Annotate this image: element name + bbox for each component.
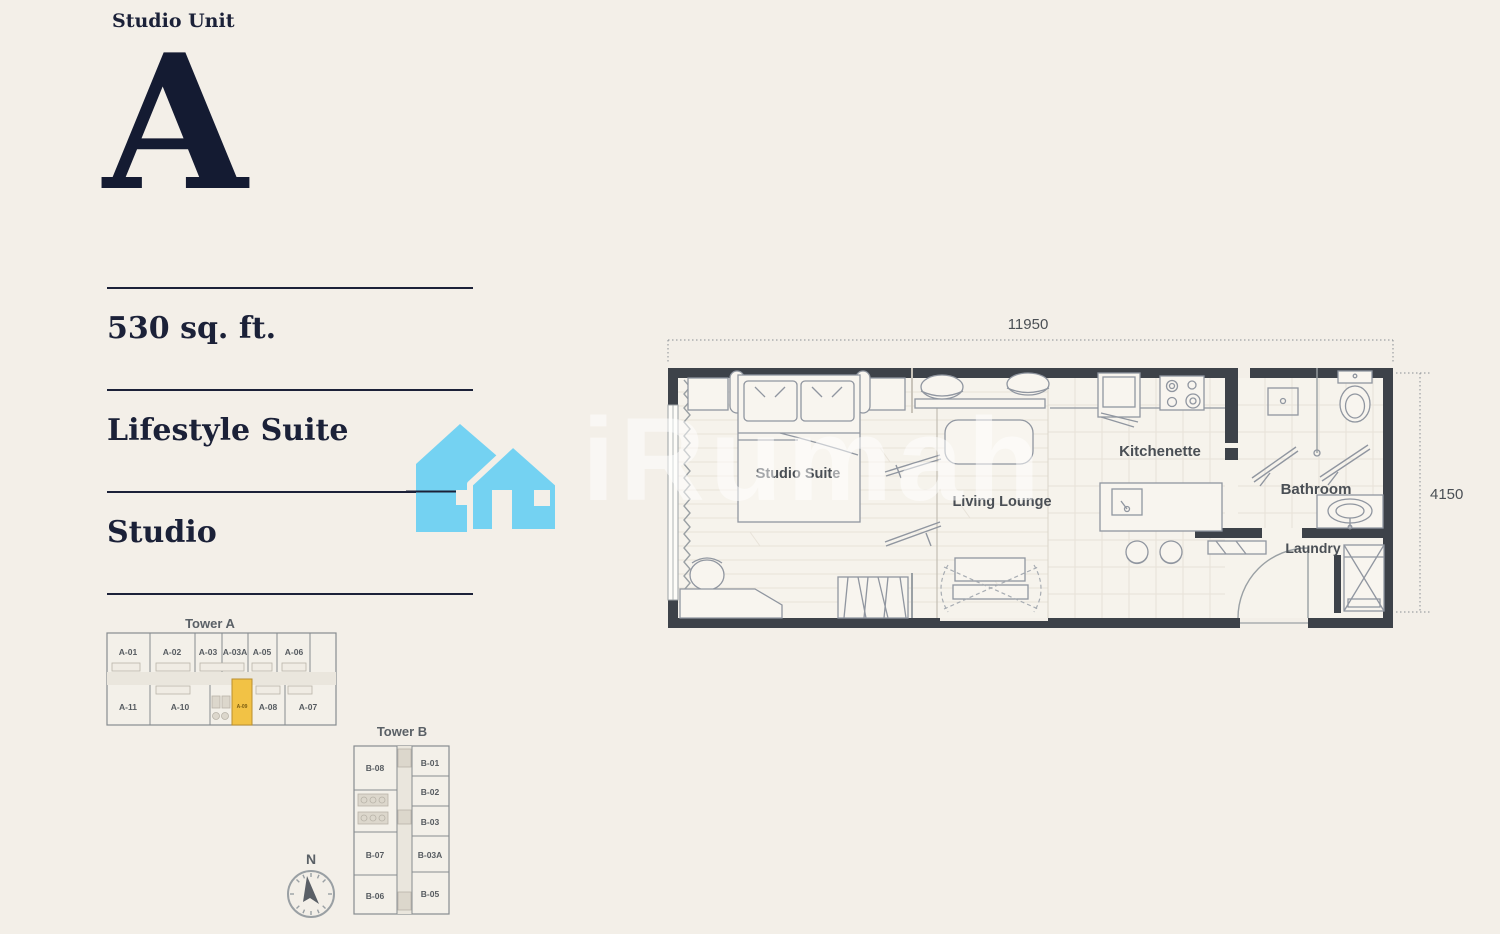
unit-b05: B-05: [421, 889, 440, 899]
unit-b03a: B-03A: [418, 850, 443, 860]
unit-b01: B-01: [421, 758, 440, 768]
unit-b08: B-08: [366, 763, 385, 773]
svg-text:4150: 4150: [1430, 486, 1463, 503]
room-label-kitchenette: Kitchenette: [1119, 443, 1201, 460]
unit-a07: A-07: [299, 702, 318, 712]
tower-a-title: Tower A: [185, 616, 235, 631]
tower-b-keyplan: Tower B B-08 B-07 B-06 B-01 B-02 B-03 B-…: [348, 722, 458, 922]
room-label-bathroom: Bathroom: [1281, 481, 1352, 498]
svg-text:11950: 11950: [1008, 316, 1049, 333]
divider-rule: [107, 593, 473, 595]
dimension-width: 11950: [668, 316, 1393, 363]
room-label-living-lounge: Living Lounge: [952, 494, 1051, 510]
unit-a03a: A-03A: [223, 647, 248, 657]
spec-area: 530 sq. ft.: [107, 287, 473, 389]
unit-a09-label: A-09: [237, 704, 248, 710]
dimension-height: 4150: [1396, 373, 1463, 612]
compass-needle: [303, 876, 319, 904]
corridor: [107, 672, 336, 685]
unit-a08: A-08: [259, 702, 278, 712]
tower-b-title: Tower B: [377, 724, 427, 739]
unit-a02: A-02: [163, 647, 182, 657]
unit-a03: A-03: [199, 647, 218, 657]
unit-b02: B-02: [421, 787, 440, 797]
compass: N: [282, 850, 340, 922]
unit-a11: A-11: [119, 702, 137, 712]
unit-a06: A-06: [285, 647, 304, 657]
compass-north-label: N: [306, 851, 316, 867]
watermark-house-icon: [406, 410, 568, 538]
unit-b07: B-07: [366, 850, 385, 860]
unit-a01: A-01: [119, 647, 138, 657]
unit-letter: A: [103, 30, 247, 216]
floor-plan: 11950 4150: [660, 305, 1500, 635]
unit-a10: A-10: [171, 702, 190, 712]
room-label-studio-suite: Studio Suite: [756, 466, 841, 482]
unit-a05: A-05: [253, 647, 272, 657]
room-label-laundry: Laundry: [1285, 540, 1340, 556]
highlighted-unit-a09: [232, 679, 252, 725]
tower-a-keyplan: Tower A A-01 A-02 A-03 A-03A A-05 A-06 A…: [100, 612, 340, 732]
corridor: [397, 746, 412, 914]
unit-b06: B-06: [366, 891, 385, 901]
unit-b03: B-03: [421, 817, 440, 827]
